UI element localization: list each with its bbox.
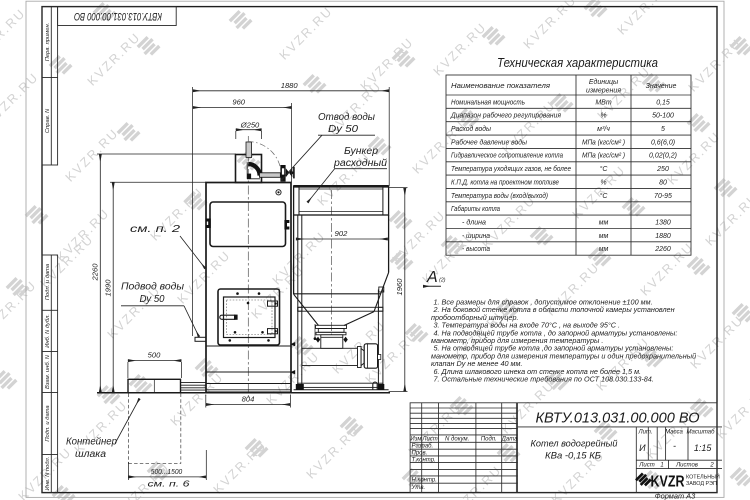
svg-text:см. п. 2: см. п. 2 <box>130 224 181 235</box>
svg-text:И: И <box>639 443 646 453</box>
svg-text:Единицы: Единицы <box>589 78 619 86</box>
svg-text:%: % <box>600 179 606 186</box>
svg-text:Дата: Дата <box>501 437 518 443</box>
svg-text:мм: мм <box>599 233 609 240</box>
svg-text:Подп. и дата: Подп. и дата <box>45 405 51 442</box>
svg-text:Значение: Значение <box>646 83 677 90</box>
svg-text:Т.контр.: Т.контр. <box>412 457 436 463</box>
svg-text:Рабочее давление воды: Рабочее давление воды <box>451 138 528 146</box>
svg-text:70-95: 70-95 <box>654 193 672 200</box>
svg-text:1880: 1880 <box>655 233 671 240</box>
svg-text:KVZR.RU: KVZR.RU <box>615 0 674 38</box>
svg-text:Номинальная мощность: Номинальная мощность <box>451 99 525 106</box>
svg-text:0,15: 0,15 <box>656 99 670 106</box>
svg-text:1:15: 1:15 <box>694 443 713 453</box>
svg-text:KVZR.RU: KVZR.RU <box>0 70 42 129</box>
svg-text:Гидравлическое сопротивление к: Гидравлическое сопротивление котла <box>451 152 563 160</box>
svg-text:Листов: Листов <box>675 463 698 469</box>
svg-text:Диапазон рабочего регулировани: Диапазон рабочего регулирования <box>450 112 561 120</box>
svg-text:Взам. инб. N: Взам. инб. N <box>45 354 51 389</box>
svg-text:KVZR.RU: KVZR.RU <box>85 30 144 89</box>
svg-text:80: 80 <box>659 179 667 186</box>
svg-text:KVZR.RU: KVZR.RU <box>168 370 227 429</box>
svg-text:KVZR.RU: KVZR.RU <box>277 4 336 63</box>
svg-text:Перв. примен.: Перв. примен. <box>45 23 51 62</box>
svg-text:KVZR.RU: KVZR.RU <box>703 190 750 249</box>
svg-text:Подп.: Подп. <box>481 437 497 443</box>
svg-text:Dy 50: Dy 50 <box>328 124 359 135</box>
svg-text:Масса: Масса <box>665 429 683 435</box>
svg-text:Температура уходящих газов, не: Температура уходящих газов, не более <box>451 165 571 173</box>
svg-text:KVZR.RU: KVZR.RU <box>264 349 323 408</box>
svg-text:N докум.: N докум. <box>445 437 469 443</box>
svg-text:1960: 1960 <box>395 278 404 296</box>
svg-text:ЗАВОД РЭП: ЗАВОД РЭП <box>686 481 717 487</box>
svg-text:МВт: МВт <box>595 99 612 106</box>
svg-text:Подп. и дата: Подп. и дата <box>45 263 51 300</box>
svg-text:KVZR.RU: KVZR.RU <box>175 248 234 307</box>
svg-text:°С: °С <box>600 192 609 200</box>
svg-text:МПа (кгс/см² ): МПа (кгс/см² ) <box>582 153 625 160</box>
svg-text:Формат А3: Формат А3 <box>655 492 696 500</box>
svg-text:KVZR.RU: KVZR.RU <box>446 463 505 500</box>
svg-text:КВа -0,15 КБ: КВа -0,15 КБ <box>545 451 601 462</box>
svg-text:1880: 1880 <box>281 81 299 90</box>
svg-text:расходный: расходный <box>333 158 388 169</box>
svg-text:КВТУ.013.031.00.000 ВО: КВТУ.013.031.00.000 ВО <box>536 411 700 427</box>
svg-text:Отвод воды: Отвод воды <box>318 112 376 123</box>
svg-text:МПа (кгс/см² ): МПа (кгс/см² ) <box>582 139 625 146</box>
svg-text:Техническая характеристика: Техническая характеристика <box>497 56 658 70</box>
svg-text:2260: 2260 <box>654 246 671 253</box>
svg-text:902: 902 <box>335 229 348 238</box>
svg-text:- ширина: - ширина <box>462 233 490 240</box>
svg-text:2: 2 <box>709 463 714 469</box>
svg-text:%: % <box>600 113 606 120</box>
svg-text:Пров.: Пров. <box>412 451 428 457</box>
svg-text:Расход воды: Расход воды <box>451 125 492 133</box>
svg-text:KVZR.RU: KVZR.RU <box>714 383 750 442</box>
svg-text:Ø250: Ø250 <box>240 121 260 130</box>
svg-text:5: 5 <box>661 126 665 133</box>
svg-text:Н.контр.: Н.контр. <box>412 478 437 484</box>
svg-text:К.П.Д. котла на проектном топл: К.П.Д. котла на проектном топливе <box>451 179 559 186</box>
svg-text:- высота: - высота <box>462 246 490 253</box>
svg-text:Подвод воды: Подвод воды <box>121 282 185 293</box>
svg-text:Контейнер: Контейнер <box>66 437 118 448</box>
svg-text:м³/ч: м³/ч <box>597 126 610 133</box>
svg-text:Разраб.: Разраб. <box>412 444 434 450</box>
svg-text:804: 804 <box>242 394 255 403</box>
svg-text:Лит.: Лит. <box>637 429 652 435</box>
svg-text:Температура воды (вход/выход): Температура воды (вход/выход) <box>451 192 548 200</box>
svg-text:Инв. N подл.: Инв. N подл. <box>45 457 51 491</box>
svg-text:Утв.: Утв. <box>411 485 426 491</box>
svg-text:Dy 50: Dy 50 <box>140 294 166 305</box>
svg-text:KVZR: KVZR <box>651 474 685 491</box>
svg-text:960: 960 <box>232 98 245 107</box>
svg-text:KVZR.RU: KVZR.RU <box>431 20 490 79</box>
svg-text:мм: мм <box>599 219 609 226</box>
svg-text:1380: 1380 <box>655 219 671 226</box>
svg-text:измерения: измерения <box>586 88 621 95</box>
svg-text:KVZR.RU: KVZR.RU <box>499 378 558 437</box>
svg-text:KVZR.RU: KVZR.RU <box>63 126 122 185</box>
svg-text:KVZR.RU: KVZR.RU <box>304 423 363 482</box>
svg-text:250: 250 <box>656 166 669 173</box>
svg-text:мм: мм <box>599 246 609 253</box>
svg-text:KVZR.RU: KVZR.RU <box>500 98 559 157</box>
svg-text:2260: 2260 <box>90 263 99 282</box>
svg-text:Изм: Изм <box>410 437 421 443</box>
svg-text:Лист: Лист <box>638 463 654 469</box>
svg-text:KVZR.RU: KVZR.RU <box>521 0 580 52</box>
svg-text:Наименование показателя: Наименование показателя <box>451 83 550 90</box>
svg-text:Справ. N: Справ. N <box>45 108 51 133</box>
svg-text:1: 1 <box>660 463 663 469</box>
svg-text:Лист: Лист <box>421 437 437 443</box>
svg-text:°С: °С <box>600 165 609 173</box>
svg-text:КВТУ.013.031.00.000 ВО: КВТУ.013.031.00.000 ВО <box>74 10 162 22</box>
svg-text:Бункер: Бункер <box>344 146 379 157</box>
svg-text:500...1500: 500...1500 <box>151 469 183 476</box>
svg-text:см. п. 6: см. п. 6 <box>148 479 190 489</box>
svg-text:Котел водогрейный: Котел водогрейный <box>531 439 619 450</box>
svg-text:шлака: шлака <box>75 449 107 460</box>
svg-text:500: 500 <box>148 351 161 360</box>
svg-text:Масштаб: Масштаб <box>686 429 715 435</box>
svg-text:7. Остальные технические треб: 7. Остальные технические требования по О… <box>434 375 654 384</box>
svg-text:50-100: 50-100 <box>652 113 674 120</box>
svg-text:1990: 1990 <box>103 279 112 297</box>
svg-text:Инб. N дубл.: Инб. N дубл. <box>45 314 51 348</box>
svg-text:0,02(0,2): 0,02(0,2) <box>649 153 677 160</box>
svg-text:0,6(6,0): 0,6(6,0) <box>651 139 675 146</box>
svg-text:Габариты котла: Габариты котла <box>451 205 500 213</box>
svg-text:КОТЕЛЬНЫЙ: КОТЕЛЬНЫЙ <box>686 473 720 481</box>
svg-text:- длина: - длина <box>462 218 486 226</box>
svg-text:KVZR.RU: KVZR.RU <box>0 6 29 65</box>
svg-text:KVZR.RU: KVZR.RU <box>72 398 131 457</box>
svg-text:-: - <box>673 441 676 451</box>
